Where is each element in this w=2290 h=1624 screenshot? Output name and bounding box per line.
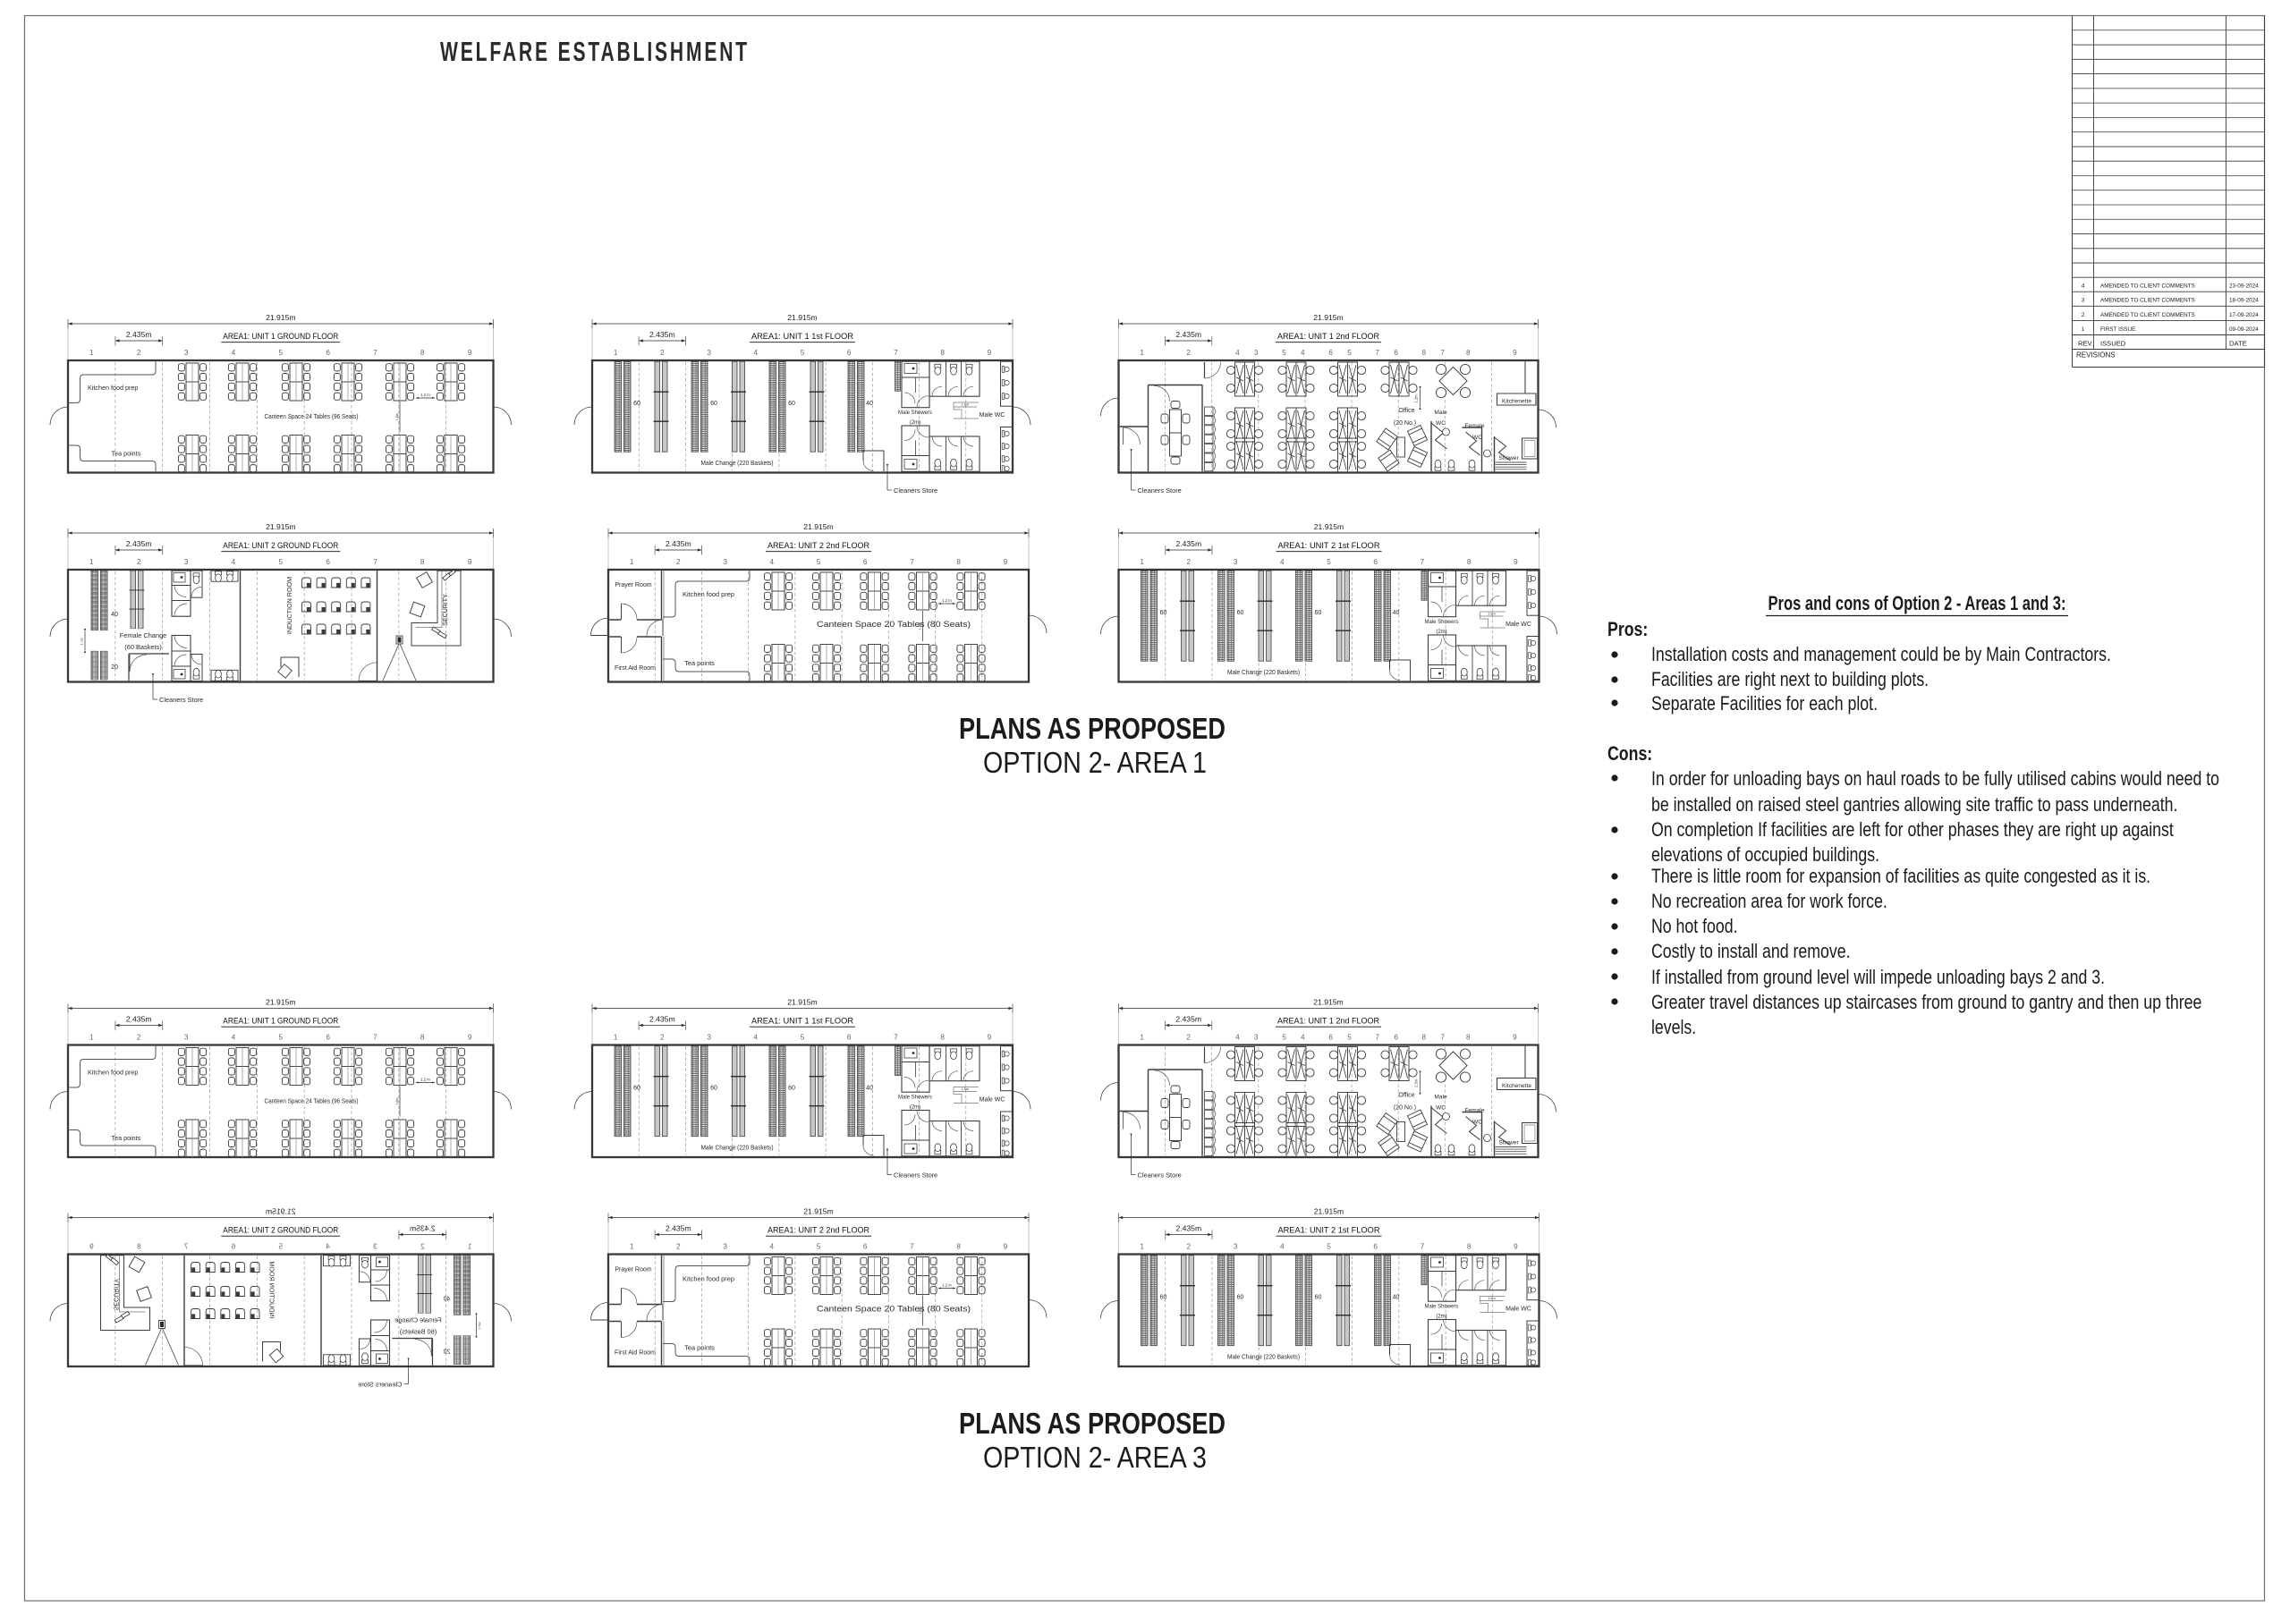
svg-text:1: 1 — [89, 558, 94, 566]
svg-text:3: 3 — [184, 558, 189, 566]
svg-text:21.915m: 21.915m — [787, 313, 817, 322]
svg-text:6: 6 — [847, 1034, 852, 1042]
svg-text:9: 9 — [988, 349, 992, 357]
svg-text:AREA1: UNIT 1 2nd FLOOR: AREA1: UNIT 1 2nd FLOOR — [1277, 332, 1379, 342]
svg-text:4: 4 — [2082, 283, 2085, 290]
svg-text:4: 4 — [1280, 1243, 1285, 1251]
svg-text:On completion If facilities ar: On completion If facilities are left for… — [1651, 818, 2174, 841]
svg-text:09-09-2024: 09-09-2024 — [2229, 326, 2259, 333]
svg-text:Pros:: Pros: — [1607, 618, 1648, 640]
svg-text:21.915m: 21.915m — [266, 313, 295, 322]
svg-text:6: 6 — [326, 349, 330, 357]
svg-text:8: 8 — [1467, 1243, 1472, 1251]
svg-text:No hot food.: No hot food. — [1651, 915, 1738, 937]
svg-text:21.915m: 21.915m — [1314, 1207, 1344, 1216]
svg-text:5: 5 — [279, 349, 284, 357]
svg-text:1: 1 — [2082, 326, 2085, 333]
svg-text:21.915m: 21.915m — [803, 1207, 833, 1216]
svg-text:5: 5 — [1282, 349, 1286, 357]
svg-text:8: 8 — [137, 1243, 141, 1251]
svg-text:AMENDED TO CLIENT COMMENTS: AMENDED TO CLIENT COMMENTS — [2100, 298, 2195, 304]
svg-text:Installation costs and manage: Installation costs and management could … — [1651, 643, 2111, 665]
svg-text:2.435m: 2.435m — [126, 1015, 152, 1024]
svg-text:21.915m: 21.915m — [266, 998, 295, 1007]
svg-text:Cleaners Store: Cleaners Store — [1138, 486, 1182, 495]
svg-text:7: 7 — [894, 349, 898, 357]
svg-text:Separate Facilities for each p: Separate Facilities for each plot. — [1651, 692, 1878, 715]
svg-text:2: 2 — [660, 1034, 665, 1042]
svg-text:1: 1 — [1140, 349, 1144, 357]
svg-text:7: 7 — [1421, 558, 1425, 566]
svg-text:AREA1: UNIT 2 1st FLOOR: AREA1: UNIT 2 1st FLOOR — [1277, 1226, 1379, 1236]
svg-text:6: 6 — [1394, 349, 1398, 357]
svg-text:4: 4 — [1301, 1034, 1305, 1042]
svg-text:If installed from ground level: If installed from ground level will impe… — [1651, 966, 2105, 988]
svg-text:Cleaners Store: Cleaners Store — [1138, 1171, 1182, 1180]
svg-text:3: 3 — [2082, 298, 2085, 304]
svg-text:2.435m: 2.435m — [1175, 1015, 1201, 1024]
svg-text:5: 5 — [1327, 558, 1331, 566]
svg-text:2.435m: 2.435m — [410, 1224, 436, 1233]
svg-text:2: 2 — [2082, 312, 2085, 318]
svg-text:AREA1: UNIT 2 GROUND FLOOR: AREA1: UNIT 2 GROUND FLOOR — [223, 541, 338, 551]
svg-text:9: 9 — [468, 349, 472, 357]
svg-text:AMENDED TO CLIENT COMMENTS: AMENDED TO CLIENT COMMENTS — [2100, 312, 2195, 318]
svg-text:6: 6 — [847, 349, 852, 357]
svg-text:3: 3 — [1254, 349, 1259, 357]
svg-text:6: 6 — [326, 1034, 330, 1042]
svg-text:4: 4 — [754, 349, 759, 357]
svg-text:AREA1: UNIT 1 1st FLOOR: AREA1: UNIT 1 1st FLOOR — [751, 332, 853, 342]
svg-text:2: 2 — [1186, 349, 1191, 357]
svg-text:5: 5 — [279, 558, 284, 566]
svg-text:5: 5 — [1347, 1034, 1352, 1042]
svg-text:3: 3 — [373, 1243, 377, 1251]
svg-text:7: 7 — [910, 558, 914, 566]
svg-text:3: 3 — [707, 1034, 711, 1042]
svg-text:2: 2 — [137, 349, 141, 357]
svg-text:2.435m: 2.435m — [666, 539, 691, 548]
svg-text:2: 2 — [1187, 558, 1192, 566]
svg-text:4: 4 — [1235, 349, 1240, 357]
svg-text:8: 8 — [1467, 558, 1472, 566]
svg-text:1: 1 — [89, 349, 94, 357]
svg-text:5: 5 — [1347, 349, 1352, 357]
svg-text:8: 8 — [420, 1034, 425, 1042]
svg-text:2: 2 — [676, 1243, 681, 1251]
svg-text:4: 4 — [232, 349, 236, 357]
svg-text:7: 7 — [1440, 1034, 1445, 1042]
svg-text:2: 2 — [676, 558, 681, 566]
svg-text:2.435m: 2.435m — [1175, 330, 1201, 339]
svg-text:AREA1: UNIT 2 1st FLOOR: AREA1: UNIT 2 1st FLOOR — [1277, 541, 1379, 551]
svg-text:Cons:: Cons: — [1607, 742, 1652, 765]
svg-text:21.915m: 21.915m — [803, 522, 833, 531]
svg-text:21.915m: 21.915m — [787, 998, 817, 1007]
svg-text:3: 3 — [184, 349, 189, 357]
svg-text:8: 8 — [1466, 1034, 1471, 1042]
svg-text:5: 5 — [801, 349, 805, 357]
svg-text:1: 1 — [630, 1243, 634, 1251]
svg-text:AREA1: UNIT 2 2nd FLOOR: AREA1: UNIT 2 2nd FLOOR — [768, 1226, 869, 1236]
svg-text:AREA1: UNIT 1 2nd FLOOR: AREA1: UNIT 1 2nd FLOOR — [1277, 1017, 1379, 1027]
svg-text:9: 9 — [1514, 1243, 1518, 1251]
svg-text:OPTION 2- AREA 3: OPTION 2- AREA 3 — [983, 1442, 1207, 1475]
svg-text:Cleaners Store: Cleaners Store — [894, 1171, 937, 1180]
svg-text:7: 7 — [1375, 349, 1379, 357]
svg-text:6: 6 — [326, 558, 330, 566]
svg-text:1: 1 — [630, 558, 634, 566]
svg-text:REVISIONS: REVISIONS — [2076, 351, 2116, 359]
svg-text:Facilities are right next to b: Facilities are right next to building pl… — [1651, 668, 1929, 690]
svg-text:Cleaners Store: Cleaners Store — [358, 1381, 402, 1389]
svg-text:3: 3 — [707, 349, 711, 357]
svg-text:8: 8 — [1422, 349, 1427, 357]
svg-text:6: 6 — [1373, 558, 1378, 566]
svg-text:1: 1 — [89, 1034, 94, 1042]
svg-text:2.435m: 2.435m — [1175, 539, 1201, 548]
svg-text:Cleaners Store: Cleaners Store — [159, 696, 203, 704]
svg-text:OPTION 2- AREA 1: OPTION 2- AREA 1 — [983, 747, 1207, 780]
svg-text:7: 7 — [1375, 1034, 1379, 1042]
svg-text:8: 8 — [420, 558, 425, 566]
svg-text:2.435m: 2.435m — [126, 539, 152, 548]
svg-text:AREA1: UNIT 1 GROUND FLOOR: AREA1: UNIT 1 GROUND FLOOR — [223, 332, 338, 342]
svg-text:8: 8 — [940, 349, 945, 357]
svg-text:7: 7 — [373, 349, 377, 357]
svg-text:7: 7 — [183, 1243, 188, 1251]
svg-text:AREA1: UNIT 1 GROUND FLOOR: AREA1: UNIT 1 GROUND FLOOR — [223, 1017, 338, 1027]
svg-text:2.435m: 2.435m — [666, 1224, 691, 1233]
svg-text:3: 3 — [723, 1243, 727, 1251]
svg-text:1: 1 — [1140, 1243, 1144, 1251]
svg-text:9: 9 — [1004, 558, 1008, 566]
svg-text:18-09-2024: 18-09-2024 — [2229, 298, 2259, 304]
svg-text:No recreation area for work fo: No recreation area for work force. — [1651, 890, 1887, 912]
svg-text:21.915m: 21.915m — [1313, 313, 1343, 322]
svg-text:WELFARE ESTABLISHMENT: WELFARE ESTABLISHMENT — [440, 36, 750, 67]
svg-text:PLANS AS PROPOSED: PLANS AS PROPOSED — [959, 1408, 1226, 1441]
svg-text:1: 1 — [1140, 558, 1144, 566]
svg-text:8: 8 — [420, 349, 425, 357]
svg-text:6: 6 — [863, 558, 868, 566]
svg-text:5: 5 — [1327, 1243, 1331, 1251]
svg-text:Pros and cons of Option 2 - Ar: Pros and cons of Option 2 - Areas 1 and … — [1768, 592, 2066, 614]
svg-text:5: 5 — [801, 1034, 805, 1042]
svg-text:4: 4 — [232, 1034, 236, 1042]
svg-text:9: 9 — [1514, 558, 1518, 566]
svg-text:be installed on raised steel g: be installed on raised steel gantries al… — [1651, 793, 2177, 816]
svg-text:7: 7 — [1440, 349, 1445, 357]
svg-text:1: 1 — [614, 349, 618, 357]
svg-text:REV.: REV. — [2078, 339, 2093, 347]
svg-text:8: 8 — [940, 1034, 945, 1042]
svg-text:4: 4 — [1280, 558, 1285, 566]
svg-text:8: 8 — [956, 558, 961, 566]
svg-text:2.435m: 2.435m — [126, 330, 152, 339]
svg-text:4: 4 — [1235, 1034, 1240, 1042]
svg-text:8: 8 — [1466, 349, 1471, 357]
svg-text:21.915m: 21.915m — [266, 1207, 295, 1216]
svg-text:2: 2 — [137, 558, 141, 566]
svg-text:1: 1 — [1140, 1034, 1144, 1042]
svg-text:2: 2 — [660, 349, 665, 357]
svg-text:2.435m: 2.435m — [649, 330, 675, 339]
svg-text:7: 7 — [373, 1034, 377, 1042]
svg-text:3: 3 — [723, 558, 727, 566]
svg-text:7: 7 — [1421, 1243, 1425, 1251]
svg-text:5: 5 — [817, 1243, 821, 1251]
svg-text:5: 5 — [279, 1034, 284, 1042]
svg-text:2.435m: 2.435m — [1175, 1224, 1201, 1233]
svg-text:2: 2 — [1186, 1034, 1191, 1042]
svg-text:PLANS AS PROPOSED: PLANS AS PROPOSED — [959, 713, 1226, 746]
svg-text:There is little room for expan: There is little room for expansion of fa… — [1651, 865, 2150, 887]
svg-text:21.915m: 21.915m — [1313, 998, 1343, 1007]
svg-text:6: 6 — [231, 1243, 235, 1251]
svg-text:4: 4 — [232, 558, 236, 566]
svg-text:9: 9 — [468, 1034, 472, 1042]
svg-text:1: 1 — [614, 1034, 618, 1042]
svg-text:ISSUED: ISSUED — [2100, 339, 2126, 347]
svg-text:3: 3 — [184, 1034, 189, 1042]
svg-text:9: 9 — [89, 1243, 94, 1251]
svg-text:4: 4 — [770, 1243, 775, 1251]
svg-text:3: 3 — [1254, 1034, 1259, 1042]
svg-text:7: 7 — [894, 1034, 898, 1042]
svg-text:levels.: levels. — [1651, 1016, 1696, 1038]
svg-text:9: 9 — [1513, 349, 1517, 357]
svg-text:21.915m: 21.915m — [266, 522, 295, 531]
svg-text:8: 8 — [956, 1243, 961, 1251]
svg-text:Greater travel distances up st: Greater travel distances up staircases f… — [1651, 991, 2201, 1013]
svg-text:2: 2 — [420, 1243, 425, 1251]
svg-text:9: 9 — [1004, 1243, 1008, 1251]
svg-text:4: 4 — [326, 1243, 330, 1251]
svg-text:9: 9 — [988, 1034, 992, 1042]
svg-text:DATE: DATE — [2229, 339, 2247, 347]
svg-text:8: 8 — [1422, 1034, 1427, 1042]
svg-text:6: 6 — [1394, 1034, 1398, 1042]
svg-text:6: 6 — [1373, 1243, 1378, 1251]
svg-text:23-09-2024: 23-09-2024 — [2229, 283, 2259, 290]
svg-text:AREA1: UNIT 2 2nd FLOOR: AREA1: UNIT 2 2nd FLOOR — [768, 541, 869, 551]
svg-text:6: 6 — [1328, 1034, 1333, 1042]
svg-text:In order for unloading bays on: In order for unloading bays on haul road… — [1651, 767, 2219, 790]
svg-text:Costly to install and remove.: Costly to install and remove. — [1651, 940, 1851, 962]
svg-text:AMENDED TO CLIENT COMMENTS: AMENDED TO CLIENT COMMENTS — [2100, 283, 2195, 290]
svg-text:2: 2 — [1187, 1243, 1192, 1251]
svg-text:5: 5 — [817, 558, 821, 566]
svg-text:elevations of occupied buildin: elevations of occupied buildings. — [1651, 843, 1879, 866]
svg-text:9: 9 — [1513, 1034, 1517, 1042]
svg-text:4: 4 — [770, 558, 775, 566]
svg-text:2.435m: 2.435m — [649, 1015, 675, 1024]
svg-text:4: 4 — [754, 1034, 759, 1042]
svg-text:AREA1: UNIT 1 1st FLOOR: AREA1: UNIT 1 1st FLOOR — [751, 1017, 853, 1027]
svg-text:Cleaners Store: Cleaners Store — [894, 486, 937, 495]
svg-text:6: 6 — [863, 1243, 868, 1251]
svg-text:7: 7 — [910, 1243, 914, 1251]
svg-text:7: 7 — [373, 558, 377, 566]
svg-text:4: 4 — [1301, 349, 1305, 357]
svg-text:3: 3 — [1234, 1243, 1238, 1251]
svg-text:1: 1 — [467, 1243, 471, 1251]
svg-text:5: 5 — [278, 1243, 283, 1251]
svg-text:3: 3 — [1234, 558, 1238, 566]
svg-text:FIRST ISSUE: FIRST ISSUE — [2100, 326, 2135, 333]
svg-text:9: 9 — [468, 558, 472, 566]
svg-text:17-09-2024: 17-09-2024 — [2229, 312, 2259, 318]
svg-text:5: 5 — [1282, 1034, 1286, 1042]
svg-text:21.915m: 21.915m — [1314, 522, 1344, 531]
svg-text:AREA1: UNIT 2 GROUND FLOOR: AREA1: UNIT 2 GROUND FLOOR — [223, 1226, 338, 1236]
svg-text:2: 2 — [137, 1034, 141, 1042]
svg-text:6: 6 — [1328, 349, 1333, 357]
